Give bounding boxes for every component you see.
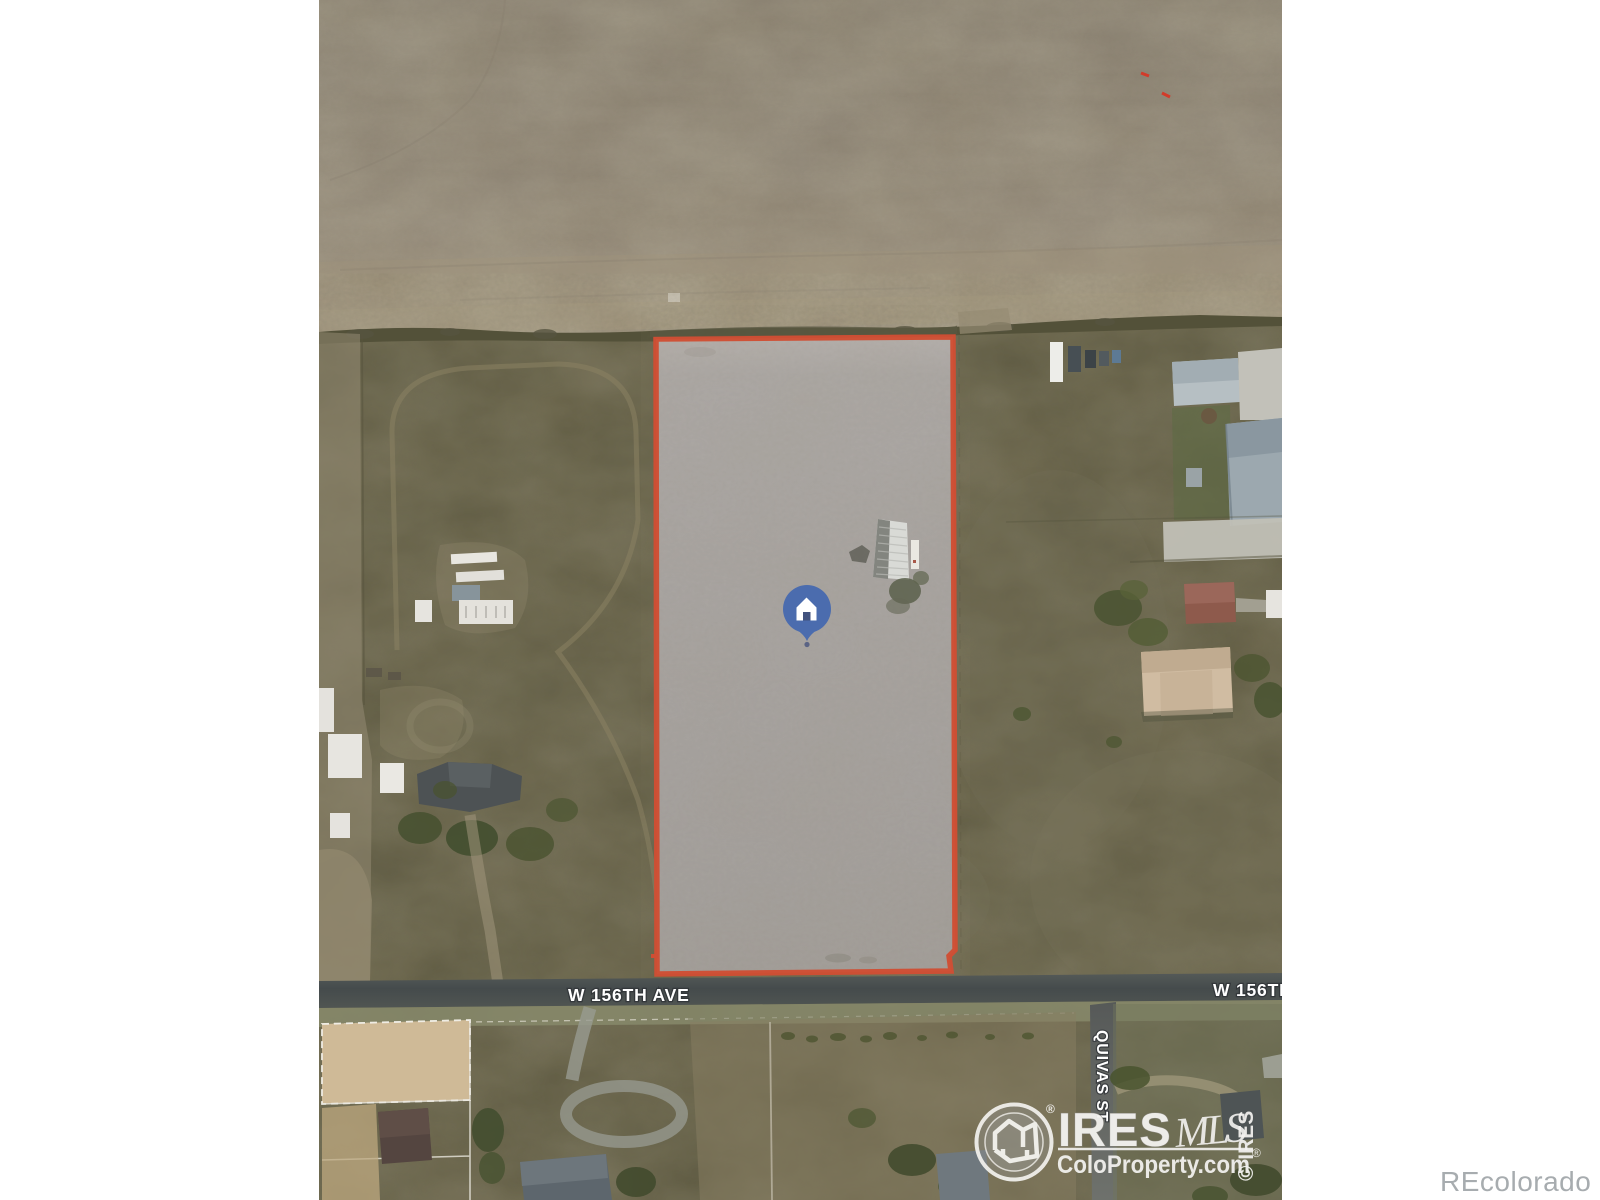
svg-text:© IRES: © IRES (1235, 1111, 1258, 1181)
svg-text:ColoProperty.com: ColoProperty.com (1057, 1151, 1250, 1179)
svg-text:®: ® (1046, 1102, 1055, 1116)
svg-text:W 156TH: W 156TH (1213, 980, 1293, 1000)
svg-text:W 156TH AVE: W 156TH AVE (568, 985, 690, 1005)
svg-text:REcolorado: REcolorado (1440, 1166, 1591, 1197)
